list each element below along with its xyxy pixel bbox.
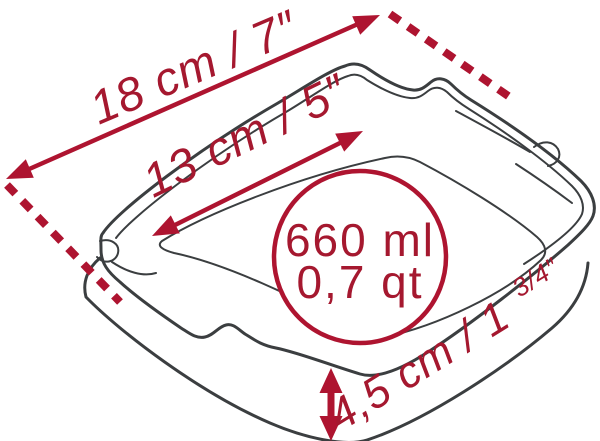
diagram-canvas: 660 ml 0,7 qt 18 cm / 7″ 13 cm / 5″ 4,5 … [0, 0, 600, 441]
height-label-fraction: 3/4″ [507, 252, 565, 304]
extension-dashed-line-left [7, 185, 120, 302]
outer-width-arrowhead-right [352, 15, 380, 35]
inner-width-arrowhead-right [335, 131, 363, 152]
right-handle-lower-line [516, 164, 572, 203]
capacity-qt-label: 0,7 qt [296, 256, 423, 308]
left-handle-inner-line [112, 262, 156, 274]
dimension-diagram: 660 ml 0,7 qt 18 cm / 7″ 13 cm / 5″ 4,5 … [0, 0, 600, 441]
outer-width-arrowhead-left [6, 159, 34, 179]
inner-width-arrowhead-left [152, 215, 180, 236]
extension-dashed-line-right [390, 14, 514, 100]
